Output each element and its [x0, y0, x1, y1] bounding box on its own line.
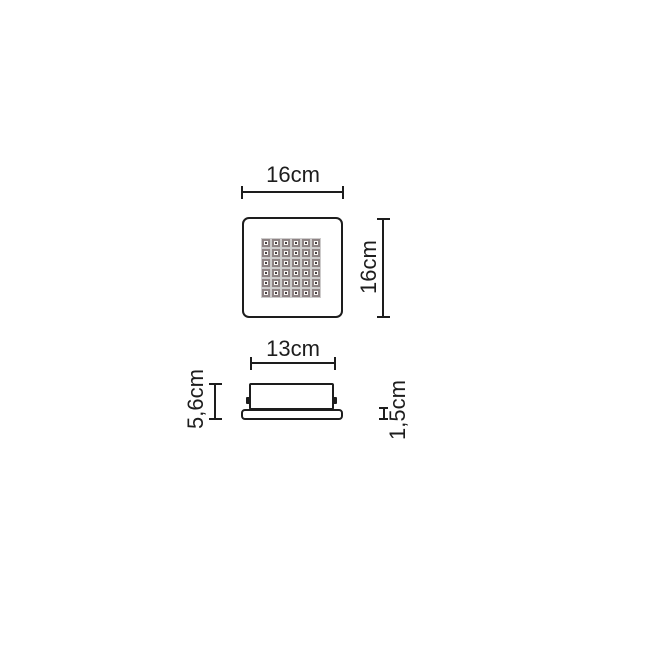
led-cell — [302, 289, 310, 297]
led-cell — [262, 289, 270, 297]
led-cell — [282, 259, 290, 267]
led-cell — [292, 269, 300, 277]
led-cell — [272, 249, 280, 257]
top-view-height-label: 16cm — [357, 217, 381, 318]
led-cell — [282, 279, 290, 287]
led-cell — [302, 269, 310, 277]
led-cell — [282, 239, 290, 247]
top-view-width-label: 16cm — [242, 163, 344, 187]
side-view-baseplate — [241, 409, 343, 420]
led-cell — [312, 289, 320, 297]
led-cell — [272, 269, 280, 277]
led-cell — [292, 259, 300, 267]
led-cell — [292, 249, 300, 257]
side-view-width-dimension — [250, 357, 336, 370]
led-cell — [302, 259, 310, 267]
led-cell — [312, 269, 320, 277]
base-thickness-label: 1,5cm — [386, 377, 410, 443]
dimension-line — [214, 383, 216, 420]
led-cell — [272, 259, 280, 267]
led-grid — [262, 239, 320, 297]
led-cell — [282, 269, 290, 277]
led-cell — [262, 259, 270, 267]
led-cell — [292, 279, 300, 287]
side-view-height-dimension — [209, 383, 222, 420]
dimension-diagram: 16cm 16cm 13cm 5,6cm 1,5cm — [0, 0, 650, 650]
side-view-height-label: 5,6cm — [184, 366, 208, 432]
led-cell — [312, 249, 320, 257]
led-cell — [272, 239, 280, 247]
led-cell — [262, 249, 270, 257]
top-view-panel — [242, 217, 343, 318]
led-cell — [302, 239, 310, 247]
dimension-tick — [334, 357, 336, 370]
dimension-line — [241, 191, 344, 193]
mounting-clip-left — [246, 397, 250, 404]
led-cell — [272, 289, 280, 297]
dimension-tick — [342, 186, 344, 199]
led-cell — [302, 279, 310, 287]
led-cell — [312, 279, 320, 287]
side-view-housing — [249, 383, 334, 410]
led-cell — [272, 279, 280, 287]
led-cell — [282, 249, 290, 257]
led-cell — [302, 249, 310, 257]
dimension-line — [250, 362, 336, 364]
led-cell — [312, 239, 320, 247]
led-cell — [282, 289, 290, 297]
mounting-clip-right — [333, 397, 337, 404]
top-view-width-dimension — [241, 186, 344, 199]
led-cell — [262, 239, 270, 247]
dimension-tick — [209, 418, 222, 420]
led-cell — [262, 279, 270, 287]
dimension-line — [382, 218, 384, 318]
led-cell — [292, 289, 300, 297]
led-cell — [312, 259, 320, 267]
led-cell — [262, 269, 270, 277]
led-cell — [292, 239, 300, 247]
